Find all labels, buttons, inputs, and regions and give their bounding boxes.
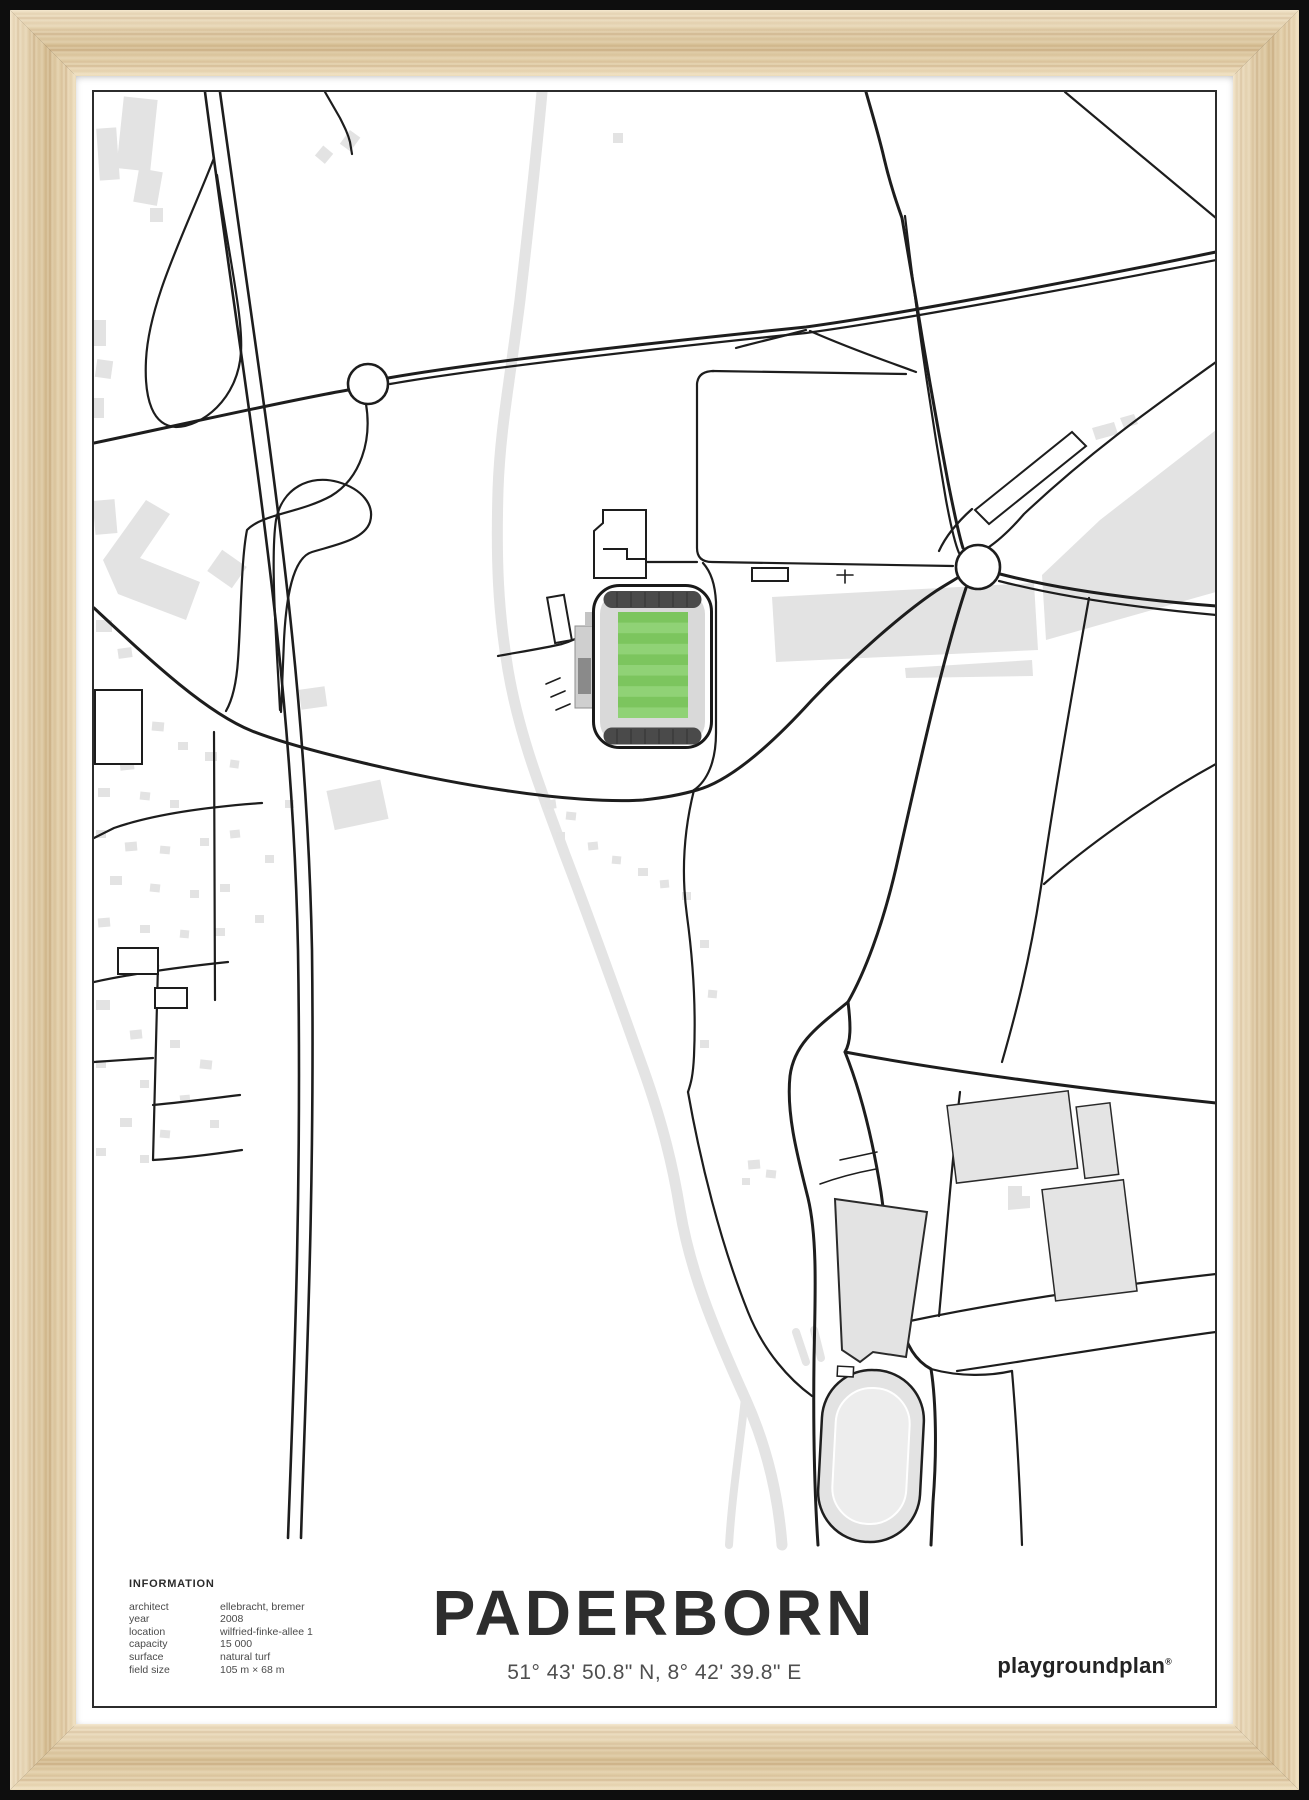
- wood-frame-left: [10, 10, 76, 1790]
- framed-map-poster: INFORMATION architect ellebracht, bremer…: [0, 0, 1309, 1800]
- poster-border-line: [92, 90, 1217, 1708]
- brand-logo: playgroundplan®: [997, 1653, 1172, 1679]
- poster-title: PADERBORN: [94, 1576, 1215, 1650]
- brand-name: playgroundplan: [997, 1653, 1165, 1678]
- wood-frame-bottom: [10, 1724, 1299, 1790]
- wood-frame-top: [10, 10, 1299, 76]
- wood-frame-right: [1233, 10, 1299, 1790]
- registered-mark: ®: [1165, 1657, 1172, 1667]
